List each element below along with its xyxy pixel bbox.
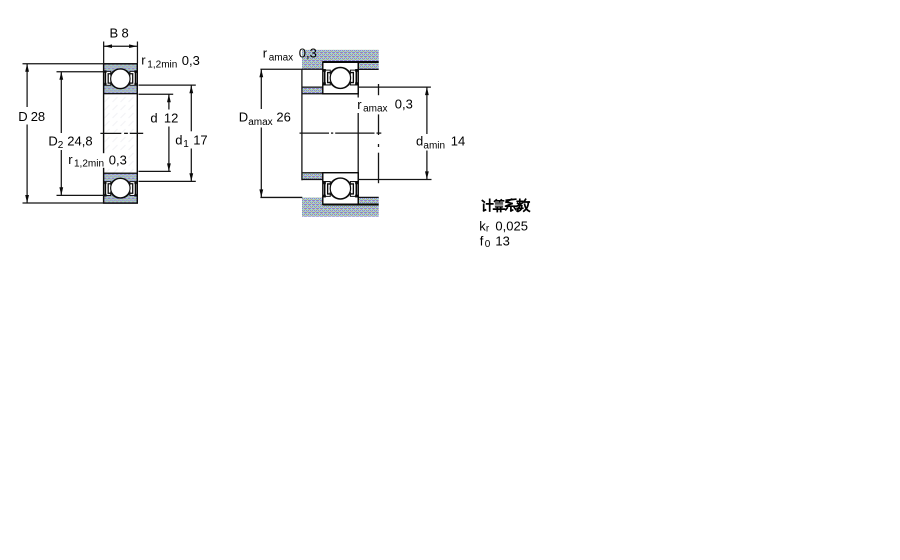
svg-text:f: f [480,234,484,249]
svg-text:28: 28 [31,109,45,124]
svg-text:amin: amin [423,140,445,151]
svg-text:D: D [239,109,248,124]
svg-text:8: 8 [122,25,129,40]
svg-text:r: r [263,46,268,61]
svg-text:12: 12 [164,111,178,126]
svg-text:0: 0 [485,239,491,250]
svg-text:r: r [141,52,146,67]
svg-text:r: r [486,224,490,235]
svg-text:amax: amax [363,104,387,115]
svg-text:amax: amax [248,117,272,128]
svg-text:17: 17 [193,132,207,147]
svg-text:r: r [357,97,362,112]
svg-text:D: D [48,133,57,148]
svg-text:1,2min: 1,2min [147,59,177,70]
svg-text:D: D [18,109,27,124]
svg-text:amax: amax [269,52,293,63]
svg-text:13: 13 [495,234,509,249]
svg-text:d: d [416,133,423,148]
svg-text:26: 26 [276,110,290,125]
svg-text:d: d [150,111,157,126]
svg-text:1,2min: 1,2min [74,159,104,170]
svg-text:0,3: 0,3 [182,53,200,68]
svg-text:r: r [68,152,73,167]
svg-text:1: 1 [183,139,189,150]
svg-text:d: d [175,132,182,147]
svg-text:0,3: 0,3 [109,152,127,167]
svg-text:B: B [110,25,119,40]
svg-text:2: 2 [58,140,64,151]
svg-text:0,3: 0,3 [299,46,317,61]
svg-text:14: 14 [451,133,465,148]
svg-text:24,8: 24,8 [67,133,92,148]
svg-text:0,025: 0,025 [495,218,528,233]
svg-text:0,3: 0,3 [395,97,413,112]
